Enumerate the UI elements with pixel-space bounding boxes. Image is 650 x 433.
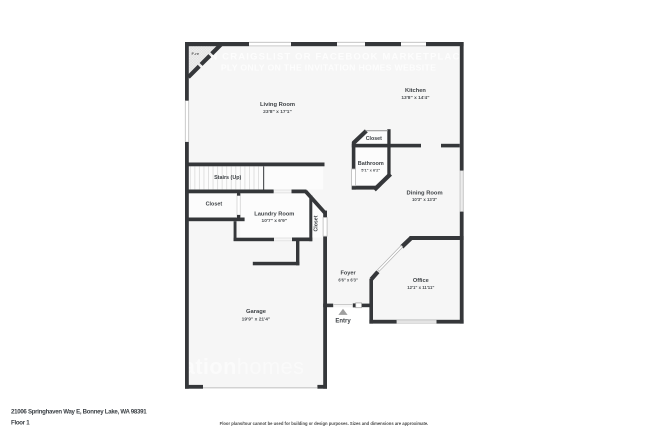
svg-text:Closet: Closet: [206, 202, 223, 208]
svg-text:F-re: F-re: [192, 51, 200, 56]
svg-text:Kitchen: Kitchen: [405, 88, 426, 94]
svg-text:Office: Office: [413, 278, 429, 284]
svg-text:invitationhomes: invitationhomes: [136, 354, 304, 379]
svg-text:Closet: Closet: [366, 136, 382, 142]
svg-text:Dining Room: Dining Room: [407, 190, 443, 196]
svg-text:Garage: Garage: [246, 309, 267, 315]
svg-text:Stairs (Up): Stairs (Up): [214, 175, 241, 181]
svg-text:12'1" x 11'11": 12'1" x 11'11": [407, 285, 434, 290]
svg-text:23'8" x 17'1": 23'8" x 17'1": [263, 109, 292, 115]
svg-text:6'6" x 6'3": 6'6" x 6'3": [338, 277, 358, 282]
svg-text:13'8" x 14'4": 13'8" x 14'4": [401, 95, 429, 101]
svg-text:Floor plans/tour cannot be use: Floor plans/tour cannot be used for buil…: [220, 421, 429, 426]
svg-text:Entry: Entry: [335, 319, 351, 325]
svg-text:21006 Springhaven Way E, Bonne: 21006 Springhaven Way E, Bonney Lake, WA…: [11, 408, 147, 415]
svg-text:Foyer: Foyer: [340, 271, 356, 277]
svg-text:10'7" x 6'9": 10'7" x 6'9": [262, 218, 288, 224]
svg-text:19'9" x 21'4": 19'9" x 21'4": [242, 316, 271, 322]
svg-text:Floor 1: Floor 1: [11, 419, 30, 426]
svg-text:Bathroom: Bathroom: [358, 161, 384, 167]
svg-text:PLY ONLY ON THE INVITATION HOM: PLY ONLY ON THE INVITATION HOMES WEBSITE: [221, 63, 436, 73]
svg-text:AD ON CRAIGSLIST OR FACEBOOK M: AD ON CRAIGSLIST OR FACEBOOK MARKETPLACE: [182, 52, 468, 63]
svg-text:Laundry Room: Laundry Room: [254, 211, 294, 217]
svg-text:5'1" x 6'2": 5'1" x 6'2": [361, 167, 380, 172]
svg-text:10'3" x 13'3": 10'3" x 13'3": [412, 197, 437, 202]
svg-text:Living Room: Living Room: [260, 102, 295, 108]
svg-text:Closet: Closet: [314, 215, 320, 231]
